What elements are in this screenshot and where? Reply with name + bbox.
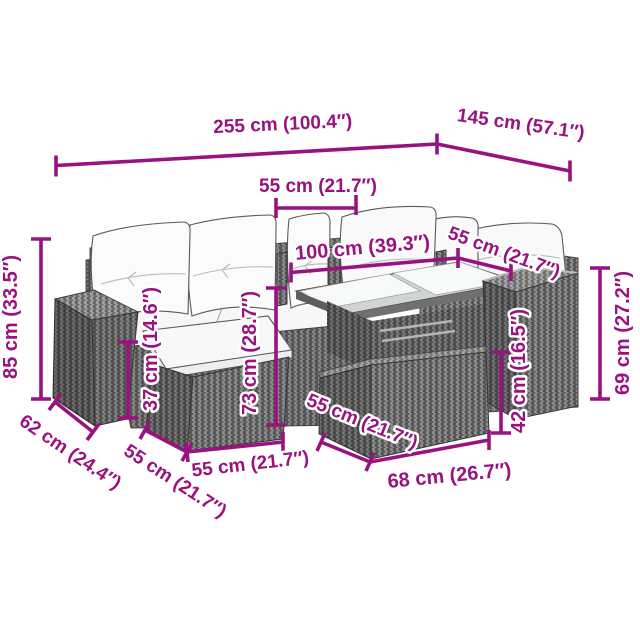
svg-text:85 cm (33.5″): 85 cm (33.5″) [0, 255, 22, 379]
svg-text:42 cm (16.5″): 42 cm (16.5″) [508, 309, 530, 433]
svg-text:55 cm (21.7″): 55 cm (21.7″) [259, 176, 377, 197]
svg-text:73 cm (28.7″): 73 cm (28.7″) [239, 291, 261, 415]
svg-text:37 cm (14.6″): 37 cm (14.6″) [140, 287, 162, 411]
svg-text:69 cm (27.2″): 69 cm (27.2″) [612, 271, 634, 395]
